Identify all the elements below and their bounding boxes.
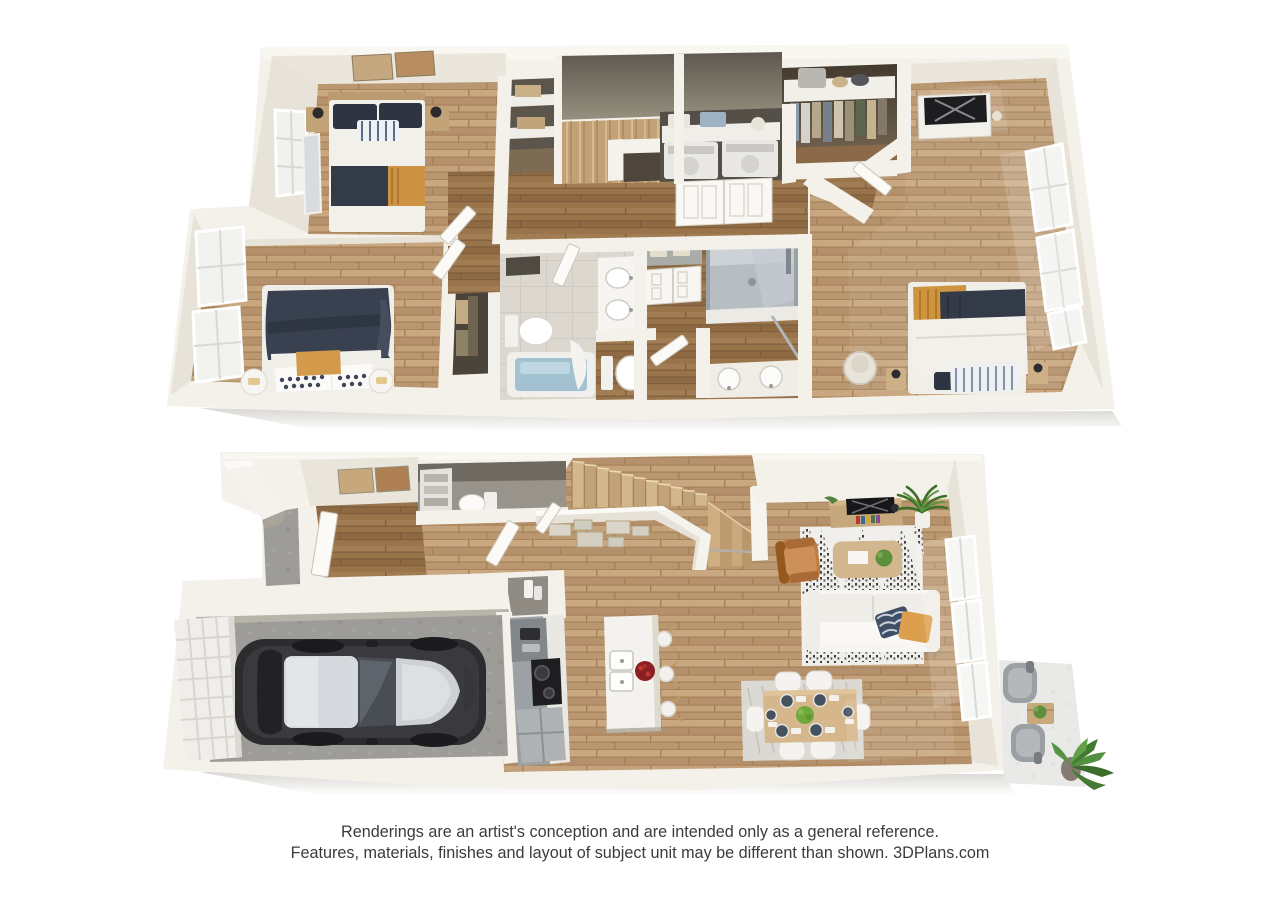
svg-text:Renderings are an artist's con: Renderings are an artist's conception an… (341, 823, 939, 841)
svg-text:Features, materials, finishes: Features, materials, finishes and layout… (291, 844, 990, 862)
